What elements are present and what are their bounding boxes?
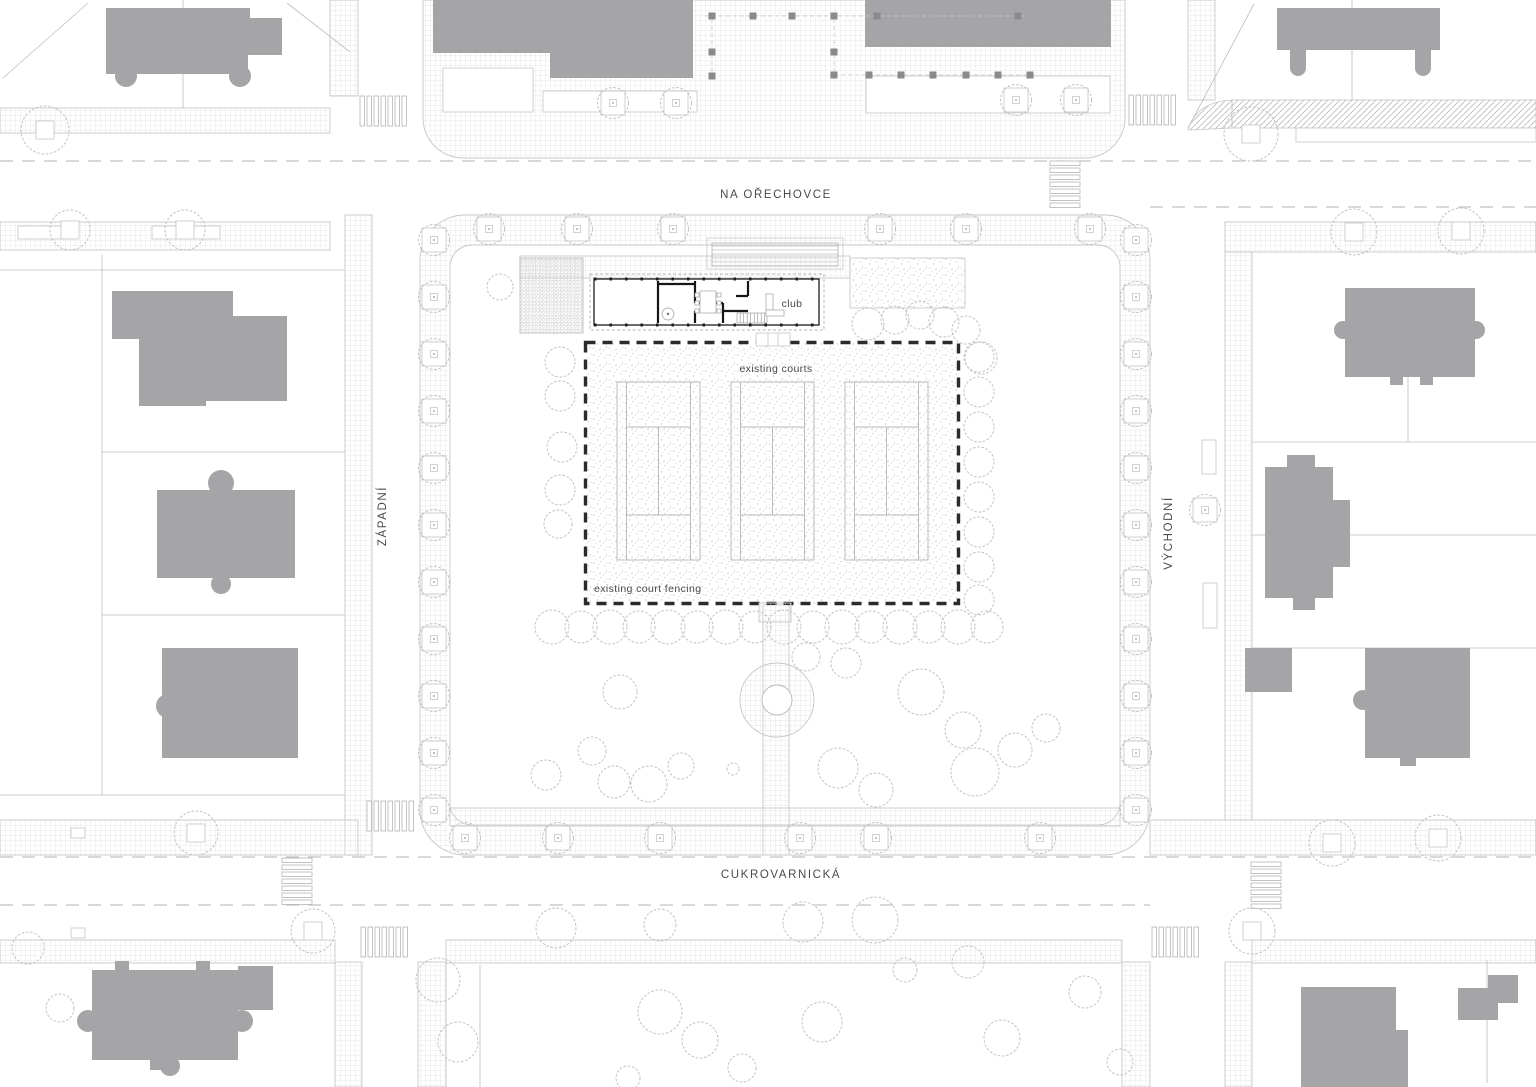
street-label-zapadni: ZÁPADNÍ <box>376 486 389 546</box>
garden-paths <box>450 605 1120 855</box>
stairs <box>737 313 767 323</box>
building-footprint <box>1301 987 1408 1087</box>
gravel-area <box>850 258 965 308</box>
building-footprint <box>865 0 1111 47</box>
terrace-paving <box>520 258 583 333</box>
site-plan-drawing: club <box>0 0 1536 1087</box>
building-footprint <box>1277 8 1440 76</box>
entrance-canopy <box>707 238 843 269</box>
existing-courts-label: existing courts <box>739 363 812 375</box>
street-label-na-orechovce: NA OŘECHOVCE <box>720 188 832 201</box>
club-building: club <box>590 274 824 330</box>
street-label-vychodni: VÝCHODNÍ <box>1162 496 1175 570</box>
building-footprint <box>1265 455 1350 610</box>
street-label-cukrovarnicka: CUKROVARNICKÁ <box>721 868 841 881</box>
table <box>700 291 716 313</box>
building-footprint <box>106 8 282 74</box>
site-plan-page: club <box>0 0 1536 1087</box>
central-block: club <box>420 215 1150 855</box>
building-footprint <box>112 291 287 406</box>
tennis-courts-area <box>586 333 959 622</box>
existing-court-fencing-label: existing court fencing <box>594 583 701 595</box>
club-label: club <box>782 298 803 310</box>
